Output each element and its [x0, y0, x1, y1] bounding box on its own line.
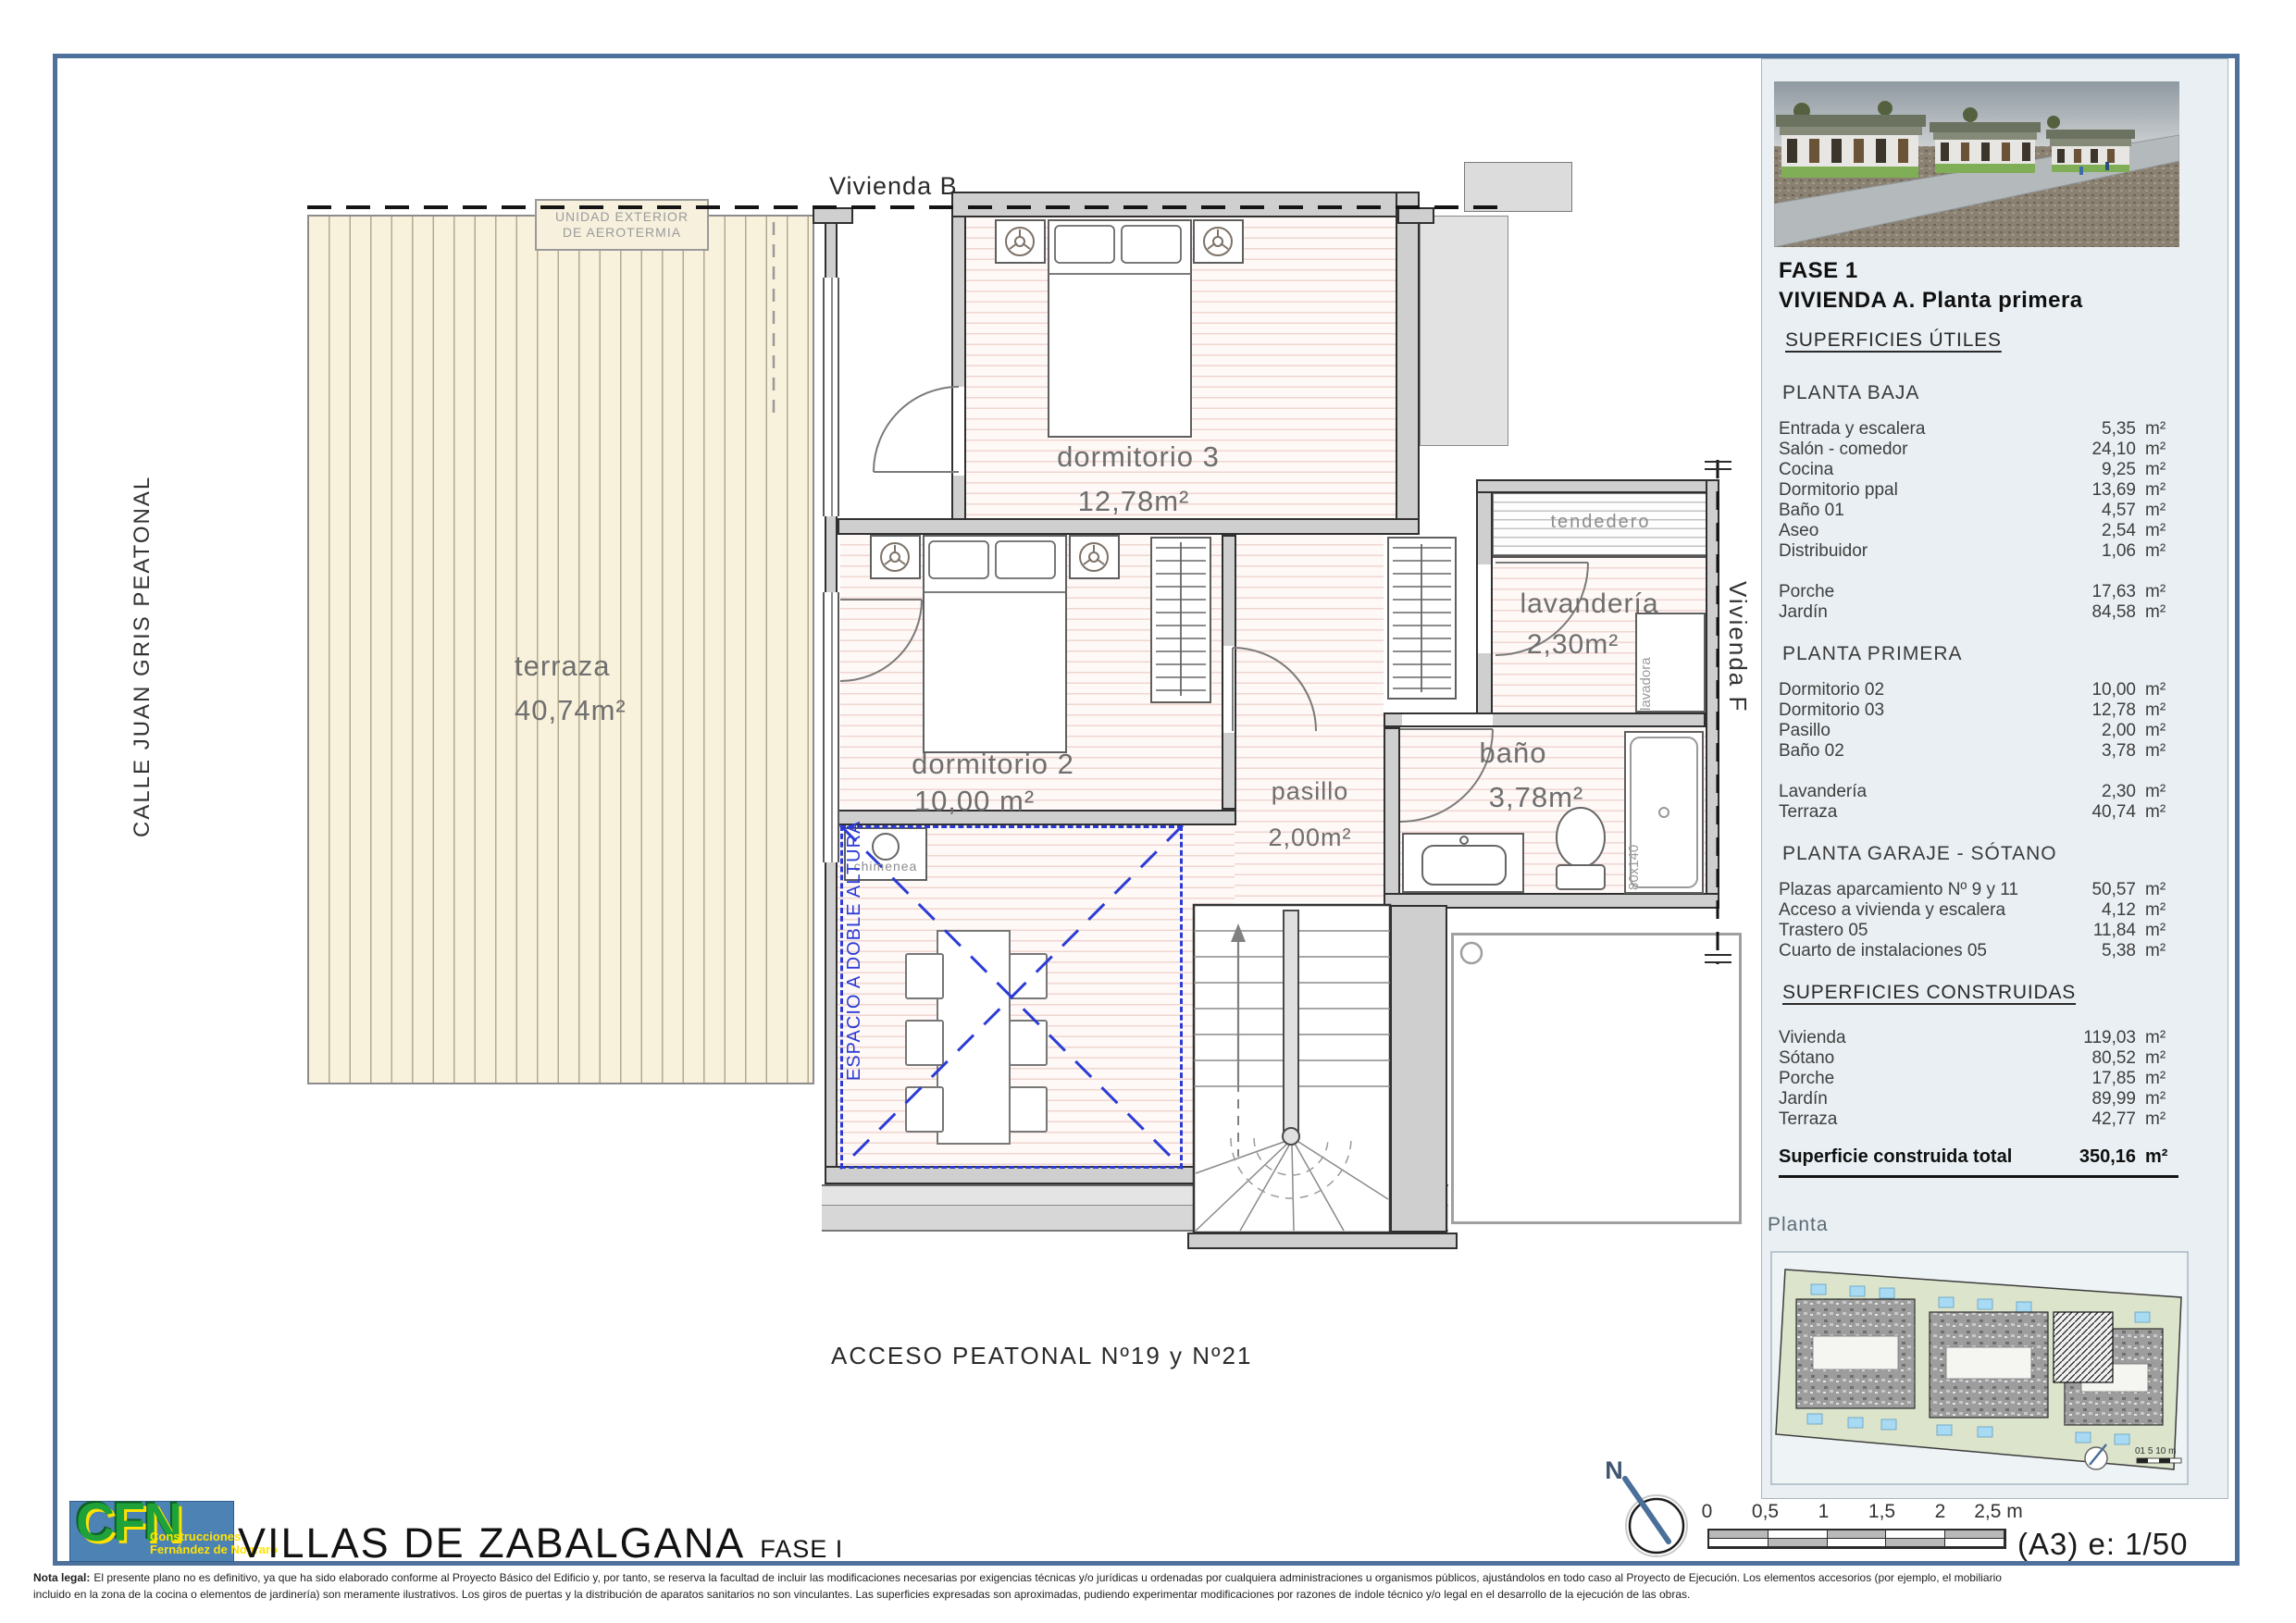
total-label: Superficie construida total: [1779, 1146, 2062, 1168]
scalebar-cell: [1769, 1530, 1828, 1539]
scalebar-tick: 2,5 m: [1969, 1501, 2028, 1523]
built-surfaces-header: SUPERFICIES CONSTRUIDAS: [1782, 982, 2178, 1004]
surface-row: Cocina 9,25 m²: [1779, 460, 2178, 480]
surface-label: Jardín: [1779, 602, 2062, 623]
garden-outline: [1451, 933, 1742, 1224]
surface-row: Dormitorio ppal 13,69 m²: [1779, 480, 2178, 501]
surface-label: Trastero 05: [1779, 921, 2062, 941]
wall: [1384, 712, 1706, 727]
legal-label: Nota legal:: [33, 1571, 90, 1584]
wall: [1706, 479, 1719, 909]
terrace-area: 40,74m²: [515, 688, 627, 733]
surface-value: 3,78: [2062, 741, 2136, 762]
surface-value: 84,58: [2062, 602, 2136, 623]
surface-unit: m²: [2136, 440, 2178, 460]
surface-unit: m²: [2136, 521, 2178, 541]
surface-unit: m²: [2136, 782, 2178, 802]
surface-value: 2,54: [2062, 521, 2136, 541]
surface-row: Distribuidor 1,06 m²: [1779, 541, 2178, 562]
boundary-post: [1397, 207, 1434, 224]
total-row: Superficie construida total 350,16 m²: [1779, 1143, 2178, 1178]
terrace-name: terraza: [515, 644, 627, 688]
surface-row: Entrada y escalera 5,35 m²: [1779, 419, 2178, 440]
aerothermal-unit: UNIDAD EXTERIOR DE AEROTERMIA: [535, 199, 709, 251]
surface-row: Vivienda 119,03 m²: [1779, 1028, 2178, 1048]
surface-label: Aseo: [1779, 521, 2062, 541]
scalebar-tick: 0: [1678, 1501, 1736, 1523]
surface-unit: m²: [2136, 700, 2178, 721]
surface-label: Pasillo: [1779, 721, 2062, 741]
surface-value: 11,84: [2062, 921, 2136, 941]
surface-label: [1779, 762, 2062, 782]
useful-surfaces-header: SUPERFICIES ÚTILES: [1785, 329, 2002, 352]
surface-row: Trastero 05 11,84 m²: [1779, 921, 2178, 941]
terrace-label: terraza 40,74m²: [515, 644, 627, 733]
surface-value: 9,25: [2062, 460, 2136, 480]
drying-area-label: tendedero: [1493, 512, 1708, 533]
boundary-post: [813, 207, 853, 224]
double-height-outline: [840, 825, 1183, 1169]
legal-note: Nota legal:El presente plano no es defin…: [33, 1570, 2265, 1603]
surface-label: Acceso a vivienda y escalera: [1779, 900, 2062, 921]
group-garaje-sotano: PLANTA GARAJE - SÓTANO Plazas aparcamien…: [1779, 843, 2178, 961]
aerothermal-label-1: UNIDAD EXTERIOR: [537, 209, 707, 225]
surface-unit: [2136, 762, 2178, 782]
shower-size-label: 80x140: [1626, 812, 1642, 890]
surface-value: [2062, 562, 2136, 582]
surface-label: Salón - comedor: [1779, 440, 2062, 460]
bedroom3-name: dormitorio 3: [981, 440, 1296, 474]
bed: [923, 535, 1067, 753]
nightstand: [1069, 535, 1120, 579]
surface-value: 17,63: [2062, 582, 2136, 602]
surface-unit: m²: [2136, 602, 2178, 623]
neighbor-label-top: Vivienda B: [829, 172, 958, 201]
surface-row: Terraza 42,77 m²: [1779, 1109, 2178, 1130]
porch-band: [822, 1184, 1448, 1207]
surface-unit: m²: [2136, 480, 2178, 501]
project-title-main: VILLAS DE ZABALGANA: [238, 1519, 745, 1567]
scale-note: (A3) e: 1/50: [2017, 1527, 2188, 1562]
surface-row: Plazas aparcamiento Nº 9 y 11 50,57 m²: [1779, 880, 2178, 900]
nightstand: [870, 535, 921, 579]
wall: [825, 1166, 1403, 1184]
surface-row: [1779, 562, 2178, 582]
surface-label: Terraza: [1779, 1109, 2062, 1130]
surface-value: 119,03: [2062, 1028, 2136, 1048]
scalebar-cell: [1769, 1539, 1828, 1547]
surface-value: 2,30: [2062, 782, 2136, 802]
neighbor-structure: [1464, 162, 1572, 212]
scalebar-tick: 1,5: [1853, 1501, 1911, 1523]
site-plan-thumbnail: 01 5 10 m: [1770, 1251, 2189, 1485]
scalebar-cell: [1828, 1539, 1887, 1547]
surface-value: 17,85: [2062, 1069, 2136, 1089]
scalebar-cell: [1886, 1530, 1945, 1539]
surface-unit: m²: [2136, 1089, 2178, 1109]
wall: [951, 216, 966, 535]
surface-row: Baño 01 4,57 m²: [1779, 501, 2178, 521]
siteplan-caption: Planta: [1768, 1214, 1829, 1236]
hallway-name: pasillo: [1236, 777, 1384, 806]
surface-unit: m²: [2136, 582, 2178, 602]
legal-text1: El presente plano no es definitivo, ya q…: [93, 1571, 2002, 1584]
street-label: CALLE JUAN GRIS PEATONAL: [130, 476, 155, 837]
double-height-label: ESPACIO A DOBLE ALTURA: [844, 821, 865, 1081]
surface-rows: Dormitorio 02 10,00 m² Dormitorio 03 12,…: [1779, 680, 2178, 823]
plan-sheet: { "doc": { "title": "VILLAS DE ZABALGANA…: [0, 0, 2296, 1623]
surface-label: Dormitorio 03: [1779, 700, 2062, 721]
surface-label: Lavandería: [1779, 782, 2062, 802]
siteplan-highlight-hatch: [2054, 1312, 2113, 1382]
scalebar-tick: 2: [1911, 1501, 1969, 1523]
total-value: 350,16: [2062, 1146, 2136, 1168]
scalebar-labels: 00,511,522,5 m: [1678, 1501, 2029, 1523]
surface-label: Baño 01: [1779, 501, 2062, 521]
wardrobe: [1387, 537, 1457, 700]
wall: [838, 518, 1420, 535]
scalebar-cell: [1945, 1530, 2004, 1539]
surface-label: Cocina: [1779, 460, 2062, 480]
wardrobe: [1150, 537, 1211, 703]
surface-label: Entrada y escalera: [1779, 419, 2062, 440]
surface-unit: m²: [2136, 1028, 2178, 1048]
surface-label: Plazas aparcamiento Nº 9 y 11: [1779, 880, 2062, 900]
scalebar: [1707, 1529, 2006, 1549]
surface-value: 5,38: [2062, 941, 2136, 961]
surface-row: Porche 17,63 m²: [1779, 582, 2178, 602]
aerothermal-label-2: DE AEROTERMIA: [537, 225, 707, 241]
wall: [1222, 535, 1236, 810]
surface-row: Dormitorio 03 12,78 m²: [1779, 700, 2178, 721]
surface-value: 10,00: [2062, 680, 2136, 700]
surface-label: Baño 02: [1779, 741, 2062, 762]
surface-label: Porche: [1779, 582, 2062, 602]
wall: [1476, 479, 1719, 493]
bedroom2-name: dormitorio 2: [850, 748, 1136, 781]
project-title: VILLAS DE ZABALGANA FASE I: [238, 1519, 843, 1567]
bed: [1048, 219, 1192, 438]
roof-strip: [1420, 216, 1508, 446]
wall: [1187, 1233, 1458, 1249]
surface-row: Jardín 89,99 m²: [1779, 1089, 2178, 1109]
wall: [1396, 192, 1420, 535]
surface-row: [1779, 762, 2178, 782]
surface-unit: m²: [2136, 741, 2178, 762]
surface-unit: m²: [2136, 941, 2178, 961]
surface-value: [2062, 762, 2136, 782]
surface-unit: m²: [2136, 680, 2178, 700]
bathroom-area: 3,78m²: [1430, 781, 1643, 814]
surface-label: [1779, 562, 2062, 582]
sink-counter: [1402, 833, 1524, 893]
surface-unit: m²: [2136, 541, 2178, 562]
surface-row: Aseo 2,54 m²: [1779, 521, 2178, 541]
surface-row: Jardín 84,58 m²: [1779, 602, 2178, 623]
surface-unit: m²: [2136, 880, 2178, 900]
scalebar-cell: [1709, 1539, 1769, 1547]
surface-value: 50,57: [2062, 880, 2136, 900]
surface-row: Acceso a vivienda y escalera 4,12 m²: [1779, 900, 2178, 921]
siteplan-blocks: [1796, 1299, 2163, 1425]
surface-value: 12,78: [2062, 700, 2136, 721]
surface-row: Porche 17,85 m²: [1779, 1069, 2178, 1089]
phase-title: FASE 1: [1779, 258, 1858, 284]
laundry-name: lavandería: [1481, 588, 1698, 620]
surface-label: Terraza: [1779, 802, 2062, 823]
surface-unit: m²: [2136, 460, 2178, 480]
surface-row: Baño 02 3,78 m²: [1779, 741, 2178, 762]
surface-unit: [2136, 562, 2178, 582]
dwelling-title: VIVIENDA A. Planta primera: [1779, 288, 2083, 314]
built-rows: Vivienda 119,03 m² Sótano 80,52 m² Porch…: [1779, 1028, 2178, 1130]
group-heading: PLANTA GARAJE - SÓTANO: [1782, 843, 2178, 865]
floor-strip: [1194, 824, 1235, 905]
surface-label: Sótano: [1779, 1048, 2062, 1069]
surface-label: Cuarto de instalaciones 05: [1779, 941, 2062, 961]
surface-value: 4,57: [2062, 501, 2136, 521]
surface-unit: m²: [2136, 802, 2178, 823]
surface-unit: m²: [2136, 419, 2178, 440]
surface-value: 42,77: [2062, 1109, 2136, 1130]
surface-row: Dormitorio 02 10,00 m²: [1779, 680, 2178, 700]
group-planta-primera: PLANTA PRIMERA Dormitorio 02 10,00 m² Do…: [1779, 643, 2178, 823]
surface-unit: m²: [2136, 1048, 2178, 1069]
surface-unit: m²: [2136, 900, 2178, 921]
surface-value: 80,52: [2062, 1048, 2136, 1069]
surface-row: Lavandería 2,30 m²: [1779, 782, 2178, 802]
scalebar-cell: [1945, 1539, 2004, 1547]
scalebar-tick: 0,5: [1736, 1501, 1794, 1523]
surface-value: 40,74: [2062, 802, 2136, 823]
bathroom-name: baño: [1407, 737, 1620, 770]
window: [823, 278, 839, 516]
surface-value: 2,00: [2062, 721, 2136, 741]
group-heading: PLANTA BAJA: [1782, 382, 2178, 404]
surface-value: 1,06: [2062, 541, 2136, 562]
surface-rows: Entrada y escalera 5,35 m² Salón - comed…: [1779, 419, 2178, 623]
access-label: ACCESO PEATONAL Nº19 y Nº21: [831, 1342, 1252, 1370]
surface-label: Jardín: [1779, 1089, 2062, 1109]
siteplan-scale-text: 01 5 10 m: [2135, 1446, 2176, 1456]
scalebar-tick: 1: [1794, 1501, 1853, 1523]
nightstand: [995, 219, 1046, 264]
legal-line2: incluido en la zona de la cocina o eleme…: [33, 1587, 2265, 1604]
scalebar-cell: [1886, 1539, 1945, 1547]
surface-rows: Plazas aparcamiento Nº 9 y 11 50,57 m² A…: [1779, 880, 2178, 961]
sidewalk-band: [822, 1205, 1448, 1232]
total-unit: m²: [2136, 1146, 2178, 1168]
bedroom3-area: 12,78m²: [981, 485, 1286, 518]
surface-row: Cuarto de instalaciones 05 5,38 m²: [1779, 941, 2178, 961]
scalebar-cell: [1709, 1530, 1769, 1539]
surface-label: Porche: [1779, 1069, 2062, 1089]
surface-value: 89,99: [2062, 1089, 2136, 1109]
window: [823, 592, 839, 862]
project-render-photo: [1774, 81, 2179, 247]
group-heading: PLANTA PRIMERA: [1782, 643, 2178, 665]
surface-label: Dormitorio 02: [1779, 680, 2062, 700]
bedroom2-area: 10,00 m²: [840, 785, 1109, 818]
group-planta-baja: PLANTA BAJA Entrada y escalera 5,35 m² S…: [1779, 382, 2178, 623]
surface-unit: m²: [2136, 1069, 2178, 1089]
surface-unit: m²: [2136, 1109, 2178, 1130]
surface-label: Dormitorio ppal: [1779, 480, 2062, 501]
washer-label: lavadora: [1638, 618, 1654, 711]
surface-value: 13,69: [2062, 480, 2136, 501]
nightstand: [1193, 219, 1244, 264]
surface-label: Vivienda: [1779, 1028, 2062, 1048]
surface-label: Distribuidor: [1779, 541, 2062, 562]
wall: [1384, 727, 1400, 909]
surface-unit: m²: [2136, 721, 2178, 741]
legal-line1: Nota legal:El presente plano no es defin…: [33, 1570, 2265, 1587]
hallway-area: 2,00m²: [1236, 824, 1384, 852]
scalebar-cell: [1828, 1530, 1887, 1539]
neighbor-label-right: Vivienda F: [1723, 581, 1752, 712]
surface-row: Pasillo 2,00 m²: [1779, 721, 2178, 741]
surface-unit: m²: [2136, 921, 2178, 941]
legal-text2: incluido en la zona de la cocina o eleme…: [33, 1588, 1690, 1601]
surface-row: Sótano 80,52 m²: [1779, 1048, 2178, 1069]
surface-row: Salón - comedor 24,10 m²: [1779, 440, 2178, 460]
surface-value: 4,12: [2062, 900, 2136, 921]
surface-value: 5,35: [2062, 419, 2136, 440]
surface-row: Terraza 40,74 m²: [1779, 802, 2178, 823]
wall: [951, 192, 1420, 217]
project-title-phase: FASE I: [760, 1535, 843, 1564]
surface-tables: PLANTA BAJA Entrada y escalera 5,35 m² S…: [1779, 382, 2178, 1178]
wall: [1390, 905, 1447, 1233]
partition-line: [1493, 555, 1706, 558]
surface-value: 24,10: [2062, 440, 2136, 460]
surface-unit: m²: [2136, 501, 2178, 521]
